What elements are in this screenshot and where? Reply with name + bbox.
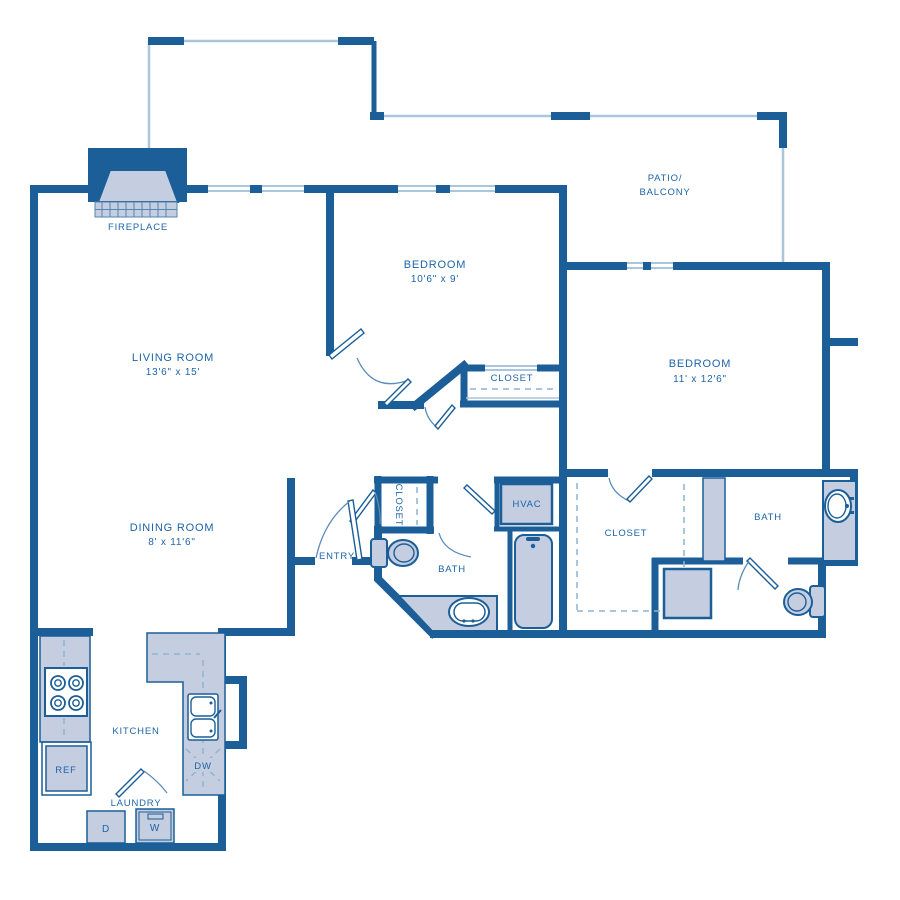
walls-interior [374, 363, 824, 634]
patio-label-line2: BALCONY [639, 187, 690, 198]
bath2-fixtures [664, 478, 856, 618]
bath2-door-leaf [747, 558, 778, 589]
bath1-door-leaf [464, 485, 495, 514]
hvac-label: HVAC [513, 499, 542, 510]
bath1-label: BATH [438, 564, 466, 575]
fireplace-hearth [95, 202, 177, 217]
dryer-label: D [102, 824, 110, 835]
bath2-door-arc [738, 561, 749, 590]
bedroom1-label: BEDROOM [404, 259, 466, 271]
bath2-label: BATH [754, 512, 782, 523]
plumbing-chase [703, 478, 725, 561]
bedroom1-door-leaf [329, 329, 364, 359]
tub-drain [531, 544, 535, 548]
bedroom1-dims: 10'6" x 9' [411, 274, 459, 285]
floor-plan-svg: PATIO/ BALCONY FIREPLACE BEDROOM 10'6" x… [0, 0, 900, 900]
laundry-door-leaf [116, 769, 144, 797]
linen-shelf [664, 569, 711, 618]
floor-plan-page: PATIO/ BALCONY FIREPLACE BEDROOM 10'6" x… [0, 0, 900, 900]
fireplace [88, 148, 187, 217]
labels: PATIO/ BALCONY FIREPLACE BEDROOM 10'6" x… [55, 173, 782, 835]
bedroom2-door-leaf [627, 476, 652, 502]
kitchen-fixtures [40, 633, 225, 843]
fireplace-label: FIREPLACE [108, 222, 168, 233]
ref-label: REF [55, 765, 76, 776]
living-room-label: LIVING ROOM [132, 352, 214, 364]
sink-1 [449, 598, 489, 626]
living-room-dims: 13'6" x 15' [146, 367, 201, 378]
hall-closet-door-leaf [435, 405, 455, 429]
toilet-2 [784, 586, 825, 617]
patio-railing [148, 37, 787, 264]
washer-label: W [150, 823, 160, 834]
entry-closet-label: CLOSET [393, 484, 404, 527]
bath1-door-arc [439, 533, 471, 557]
laundry-label: LAUNDRY [111, 798, 162, 809]
bedroom2-dims: 11' x 12'6" [673, 374, 727, 385]
dining-room-dims: 8' x 11'6" [148, 537, 195, 548]
stove [45, 668, 87, 716]
bedroom1-closet-label: CLOSET [491, 373, 534, 384]
bedroom2-door-arc [609, 478, 629, 501]
kitchen-sink [188, 694, 221, 740]
windows [208, 183, 673, 271]
entry-label: ENTRY [319, 551, 355, 562]
bedroom2-label: BEDROOM [669, 358, 731, 370]
laundry-door-arc [144, 771, 167, 793]
dw-label: DW [194, 761, 211, 772]
walkin-closet-label: CLOSET [605, 528, 648, 539]
patio-label-line1: PATIO/ [648, 173, 683, 184]
fireplace-firebox [98, 170, 178, 202]
front-door-arc [316, 501, 350, 558]
kitchen-label: KITCHEN [112, 726, 159, 737]
dining-room-label: DINING ROOM [130, 522, 215, 534]
toilet-1 [371, 539, 418, 567]
railing-posts [148, 37, 787, 148]
window-posts [250, 185, 651, 270]
bathtub [515, 535, 552, 628]
tub-faucet [526, 537, 540, 541]
bedroom1-door-arc [357, 358, 406, 384]
